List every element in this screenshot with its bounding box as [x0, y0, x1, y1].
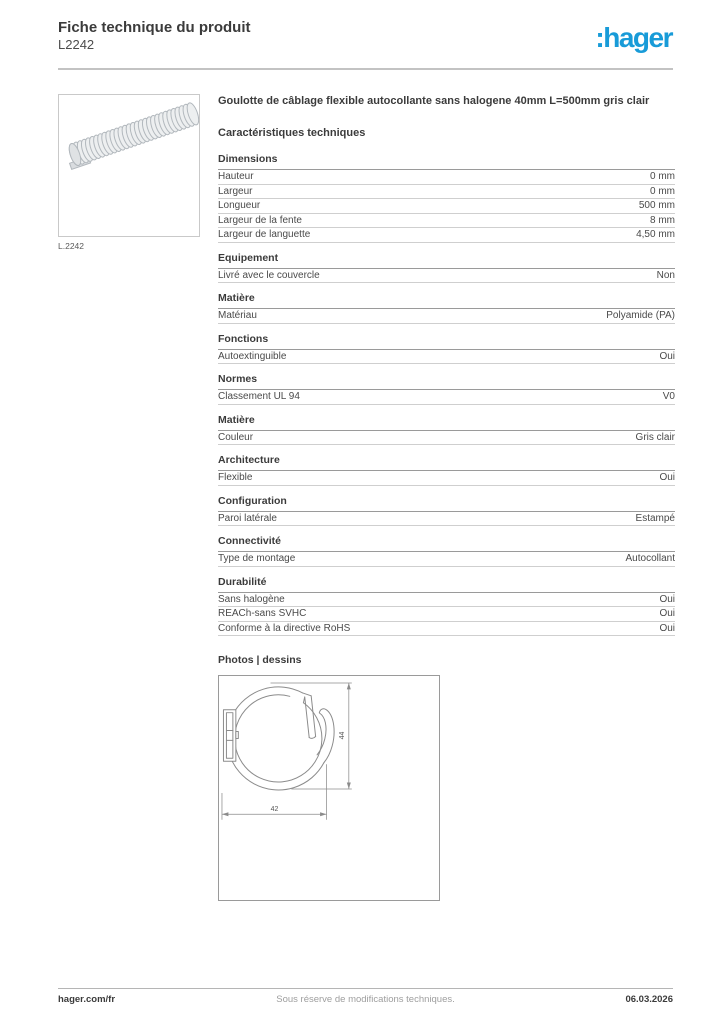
header-divider: [58, 68, 673, 70]
spec-label: Largeur: [218, 186, 252, 197]
technical-drawing: 44 42: [219, 676, 439, 900]
spec-row: Largeur 0 mm: [218, 185, 675, 200]
spec-value: Oui: [659, 472, 675, 483]
spec-label: Autoextinguible: [218, 351, 286, 362]
spec-label: Largeur de la fente: [218, 215, 302, 226]
section-rows: Classement UL 94 V0: [218, 390, 675, 405]
spec-value: 500 mm: [639, 200, 675, 211]
spec-value: Polyamide (PA): [606, 310, 675, 321]
spec-row: Classement UL 94 V0: [218, 390, 675, 405]
main-content: Goulotte de câblage flexible autocollant…: [218, 95, 675, 901]
spec-row: Couleur Gris clair: [218, 431, 675, 446]
section-title: Matière: [218, 414, 675, 431]
spec-row: Livré avec le couvercle Non: [218, 269, 675, 284]
spec-value: Estampé: [636, 513, 675, 524]
spec-label: Couleur: [218, 432, 253, 443]
spec-section: Normes Classement UL 94 V0: [218, 373, 675, 405]
spec-value: Oui: [659, 351, 675, 362]
page-title: Fiche technique du produit: [58, 19, 251, 37]
dim-height-label: 44: [339, 731, 346, 739]
section-rows: Flexible Oui: [218, 471, 675, 486]
section-rows: Hauteur 0 mm Largeur 0 mm Longueur 500 m…: [218, 170, 675, 243]
spec-label: Classement UL 94: [218, 391, 300, 402]
section-rows: Sans halogène Oui REACh-sans SVHC Oui Co…: [218, 593, 675, 637]
spec-value: 8 mm: [650, 215, 675, 226]
product-photo-spiral-duct: [59, 95, 199, 236]
spec-row: Hauteur 0 mm: [218, 170, 675, 185]
footer-date: 06.03.2026: [519, 994, 673, 1005]
section-rows: Matériau Polyamide (PA): [218, 309, 675, 324]
spec-label: Longueur: [218, 200, 260, 211]
spec-row: Largeur de la fente 8 mm: [218, 214, 675, 229]
spec-row: Sans halogène Oui: [218, 593, 675, 608]
technical-drawing-frame: 44 42: [218, 675, 440, 901]
spec-section: Matière Matériau Polyamide (PA): [218, 292, 675, 324]
footer: hager.com/fr Sous réserve de modificatio…: [58, 988, 673, 1005]
spec-label: Paroi latérale: [218, 513, 277, 524]
spec-label: Flexible: [218, 472, 252, 483]
spec-value: Non: [657, 270, 675, 281]
dim-width-label: 42: [271, 806, 279, 813]
header: Fiche technique du produit L2242: [58, 19, 251, 53]
product-name: Goulotte de câblage flexible autocollant…: [218, 95, 675, 108]
photos-heading: Photos | dessins: [218, 654, 675, 667]
spec-label: Largeur de languette: [218, 229, 310, 240]
spec-section: Architecture Flexible Oui: [218, 454, 675, 486]
section-rows: Couleur Gris clair: [218, 431, 675, 446]
section-title: Fonctions: [218, 333, 675, 350]
spec-section: Durabilité Sans halogène Oui REACh-sans …: [218, 576, 675, 637]
product-reference: L2242: [58, 37, 251, 53]
footer-disclaimer: Sous réserve de modifications techniques…: [212, 994, 520, 1005]
section-rows: Livré avec le couvercle Non: [218, 269, 675, 284]
spec-label: Conforme à la directive RoHS: [218, 623, 350, 634]
spec-label: Type de montage: [218, 553, 295, 564]
datasheet-page: Fiche technique du produit L2242 :hager: [0, 0, 724, 1024]
section-rows: Type de montage Autocollant: [218, 552, 675, 567]
spec-label: Hauteur: [218, 171, 254, 182]
hager-logo: :hager: [595, 24, 672, 52]
spec-value: Oui: [659, 623, 675, 634]
spec-row: Type de montage Autocollant: [218, 552, 675, 567]
spec-section: Fonctions Autoextinguible Oui: [218, 333, 675, 365]
section-title: Dimensions: [218, 153, 675, 170]
section-rows: Paroi latérale Estampé: [218, 512, 675, 527]
footer-site: hager.com/fr: [58, 994, 212, 1005]
section-title: Normes: [218, 373, 675, 390]
spec-label: Matériau: [218, 310, 257, 321]
spec-value: 4,50 mm: [636, 229, 675, 240]
spec-section: Configuration Paroi latérale Estampé: [218, 495, 675, 527]
spec-row: REACh-sans SVHC Oui: [218, 607, 675, 622]
spec-row: Matériau Polyamide (PA): [218, 309, 675, 324]
section-title: Matière: [218, 292, 675, 309]
spec-value: Autocollant: [626, 553, 675, 564]
spec-row: Autoextinguible Oui: [218, 350, 675, 365]
spec-value: Oui: [659, 608, 675, 619]
section-title: Durabilité: [218, 576, 675, 593]
spec-row: Longueur 500 mm: [218, 199, 675, 214]
section-title: Configuration: [218, 495, 675, 512]
spec-row: Conforme à la directive RoHS Oui: [218, 622, 675, 637]
spec-row: Flexible Oui: [218, 471, 675, 486]
spec-value: Gris clair: [636, 432, 675, 443]
spec-section: Matière Couleur Gris clair: [218, 414, 675, 446]
spec-value: Oui: [659, 594, 675, 605]
section-title: Equipement: [218, 252, 675, 269]
photo-caption: L.2242: [58, 241, 84, 251]
spec-value: 0 mm: [650, 186, 675, 197]
spec-label: REACh-sans SVHC: [218, 608, 306, 619]
section-title: Connectivité: [218, 535, 675, 552]
spec-row: Paroi latérale Estampé: [218, 512, 675, 527]
spec-value: V0: [663, 391, 675, 402]
spec-sections: Dimensions Hauteur 0 mm Largeur 0 mm Lon…: [218, 153, 675, 636]
section-title: Architecture: [218, 454, 675, 471]
spec-row: Largeur de languette 4,50 mm: [218, 228, 675, 243]
spec-section: Dimensions Hauteur 0 mm Largeur 0 mm Lon…: [218, 153, 675, 243]
section-rows: Autoextinguible Oui: [218, 350, 675, 365]
product-photo-frame: [58, 94, 200, 237]
spec-value: 0 mm: [650, 171, 675, 182]
spec-section: Equipement Livré avec le couvercle Non: [218, 252, 675, 284]
spec-label: Livré avec le couvercle: [218, 270, 320, 281]
characteristics-heading: Caractéristiques techniques: [218, 127, 675, 140]
spec-label: Sans halogène: [218, 594, 285, 605]
spec-section: Connectivité Type de montage Autocollant: [218, 535, 675, 567]
